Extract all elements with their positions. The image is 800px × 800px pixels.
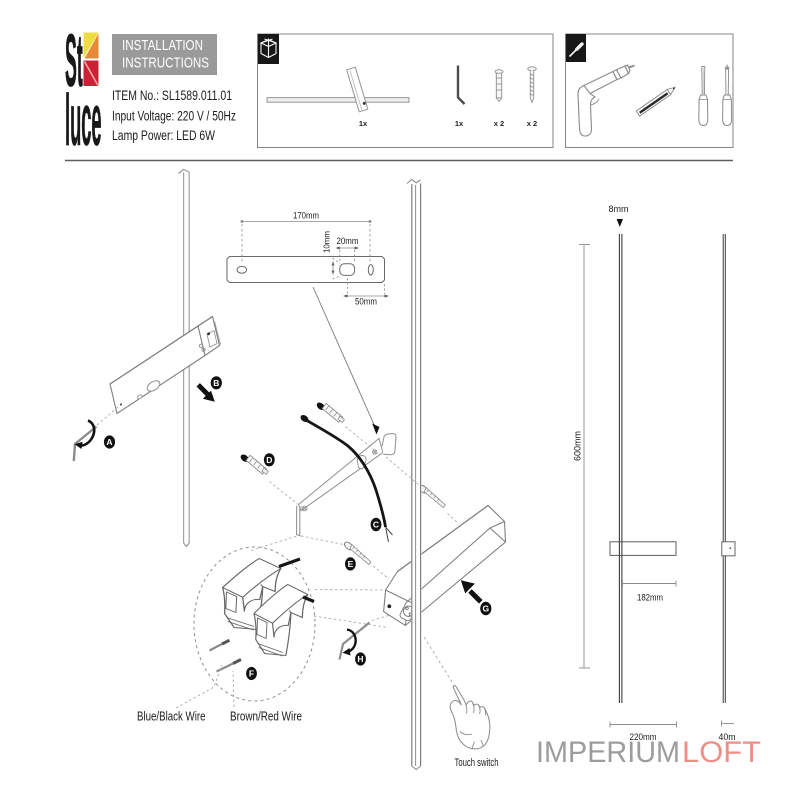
svg-text:170mm: 170mm bbox=[293, 211, 319, 221]
svg-text:1x: 1x bbox=[359, 119, 368, 128]
svg-text:Input Voltage: 220 V / 50Hz: Input Voltage: 220 V / 50Hz bbox=[112, 109, 236, 124]
svg-text:Brown/Red Wire: Brown/Red Wire bbox=[230, 709, 302, 724]
svg-text:D: D bbox=[266, 455, 272, 465]
svg-text:Lamp Power: LED 6W: Lamp Power: LED 6W bbox=[112, 128, 215, 143]
svg-text:A: A bbox=[106, 437, 112, 447]
svg-text:1x: 1x bbox=[455, 119, 464, 128]
svg-text:20mm: 20mm bbox=[337, 236, 359, 246]
svg-text:IMPERIUM: IMPERIUM bbox=[536, 736, 680, 769]
svg-text:C: C bbox=[373, 520, 379, 530]
svg-text:x 2: x 2 bbox=[494, 119, 504, 128]
svg-text:182mm: 182mm bbox=[637, 593, 663, 603]
svg-text:luce: luce bbox=[65, 81, 102, 161]
svg-text:Blue/Black Wire: Blue/Black Wire bbox=[137, 709, 206, 724]
svg-text:x 2: x 2 bbox=[527, 119, 537, 128]
svg-text:10mm: 10mm bbox=[322, 231, 332, 253]
svg-text:F: F bbox=[249, 669, 254, 679]
svg-text:600mm: 600mm bbox=[573, 431, 583, 461]
svg-text:INSTALLATION: INSTALLATION bbox=[122, 38, 203, 54]
svg-text:8mm: 8mm bbox=[609, 204, 629, 214]
svg-text:B: B bbox=[213, 378, 219, 388]
svg-text:LOFT: LOFT bbox=[682, 736, 761, 769]
svg-text:INSTRUCTIONS: INSTRUCTIONS bbox=[122, 56, 209, 72]
svg-text:E: E bbox=[348, 559, 354, 569]
svg-text:50mm: 50mm bbox=[355, 297, 377, 307]
svg-text:G: G bbox=[482, 604, 489, 614]
svg-text:ITEM No.: SL1589.011.01: ITEM No.: SL1589.011.01 bbox=[112, 88, 232, 103]
svg-text:H: H bbox=[357, 654, 363, 664]
svg-text:Touch switch: Touch switch bbox=[455, 757, 499, 769]
